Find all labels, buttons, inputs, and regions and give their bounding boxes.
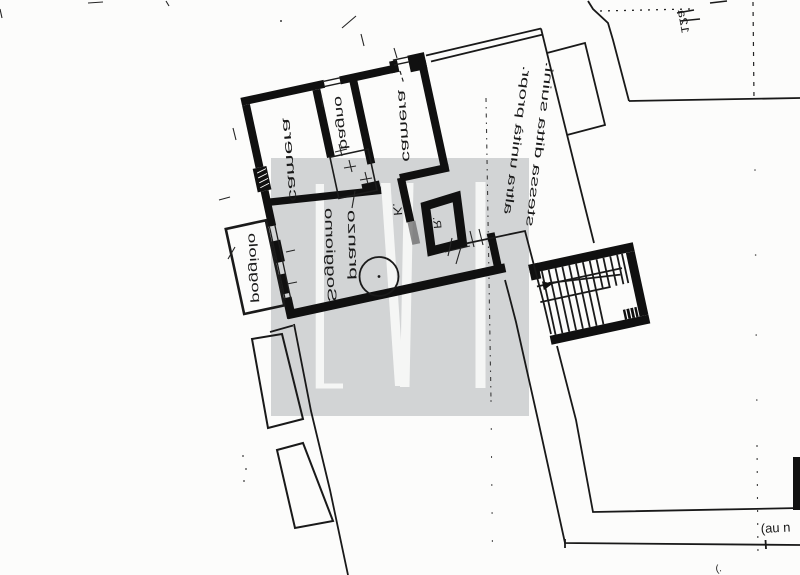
svg-text:K.: K. (390, 202, 405, 216)
svg-text:pranzo: pranzo (345, 210, 361, 281)
svg-text:R.: R. (430, 216, 443, 229)
svg-text:(au n: (au n (760, 519, 790, 536)
